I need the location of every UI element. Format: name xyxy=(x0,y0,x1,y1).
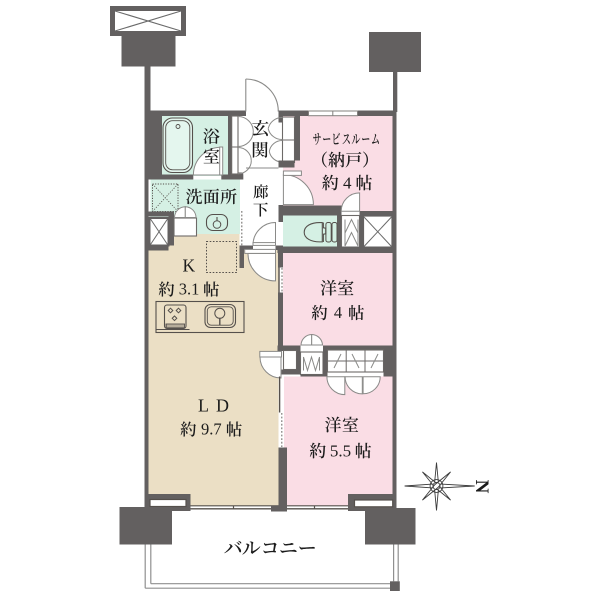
svg-text:D: D xyxy=(216,396,229,416)
svg-text:N: N xyxy=(471,480,492,494)
svg-text:5.5: 5.5 xyxy=(330,441,351,460)
svg-text:9.7: 9.7 xyxy=(201,420,222,439)
svg-text:3.1: 3.1 xyxy=(179,280,200,299)
svg-text:4: 4 xyxy=(334,303,342,322)
svg-text:L: L xyxy=(198,396,209,416)
svg-text:K: K xyxy=(182,255,195,275)
svg-text:4: 4 xyxy=(343,173,352,192)
